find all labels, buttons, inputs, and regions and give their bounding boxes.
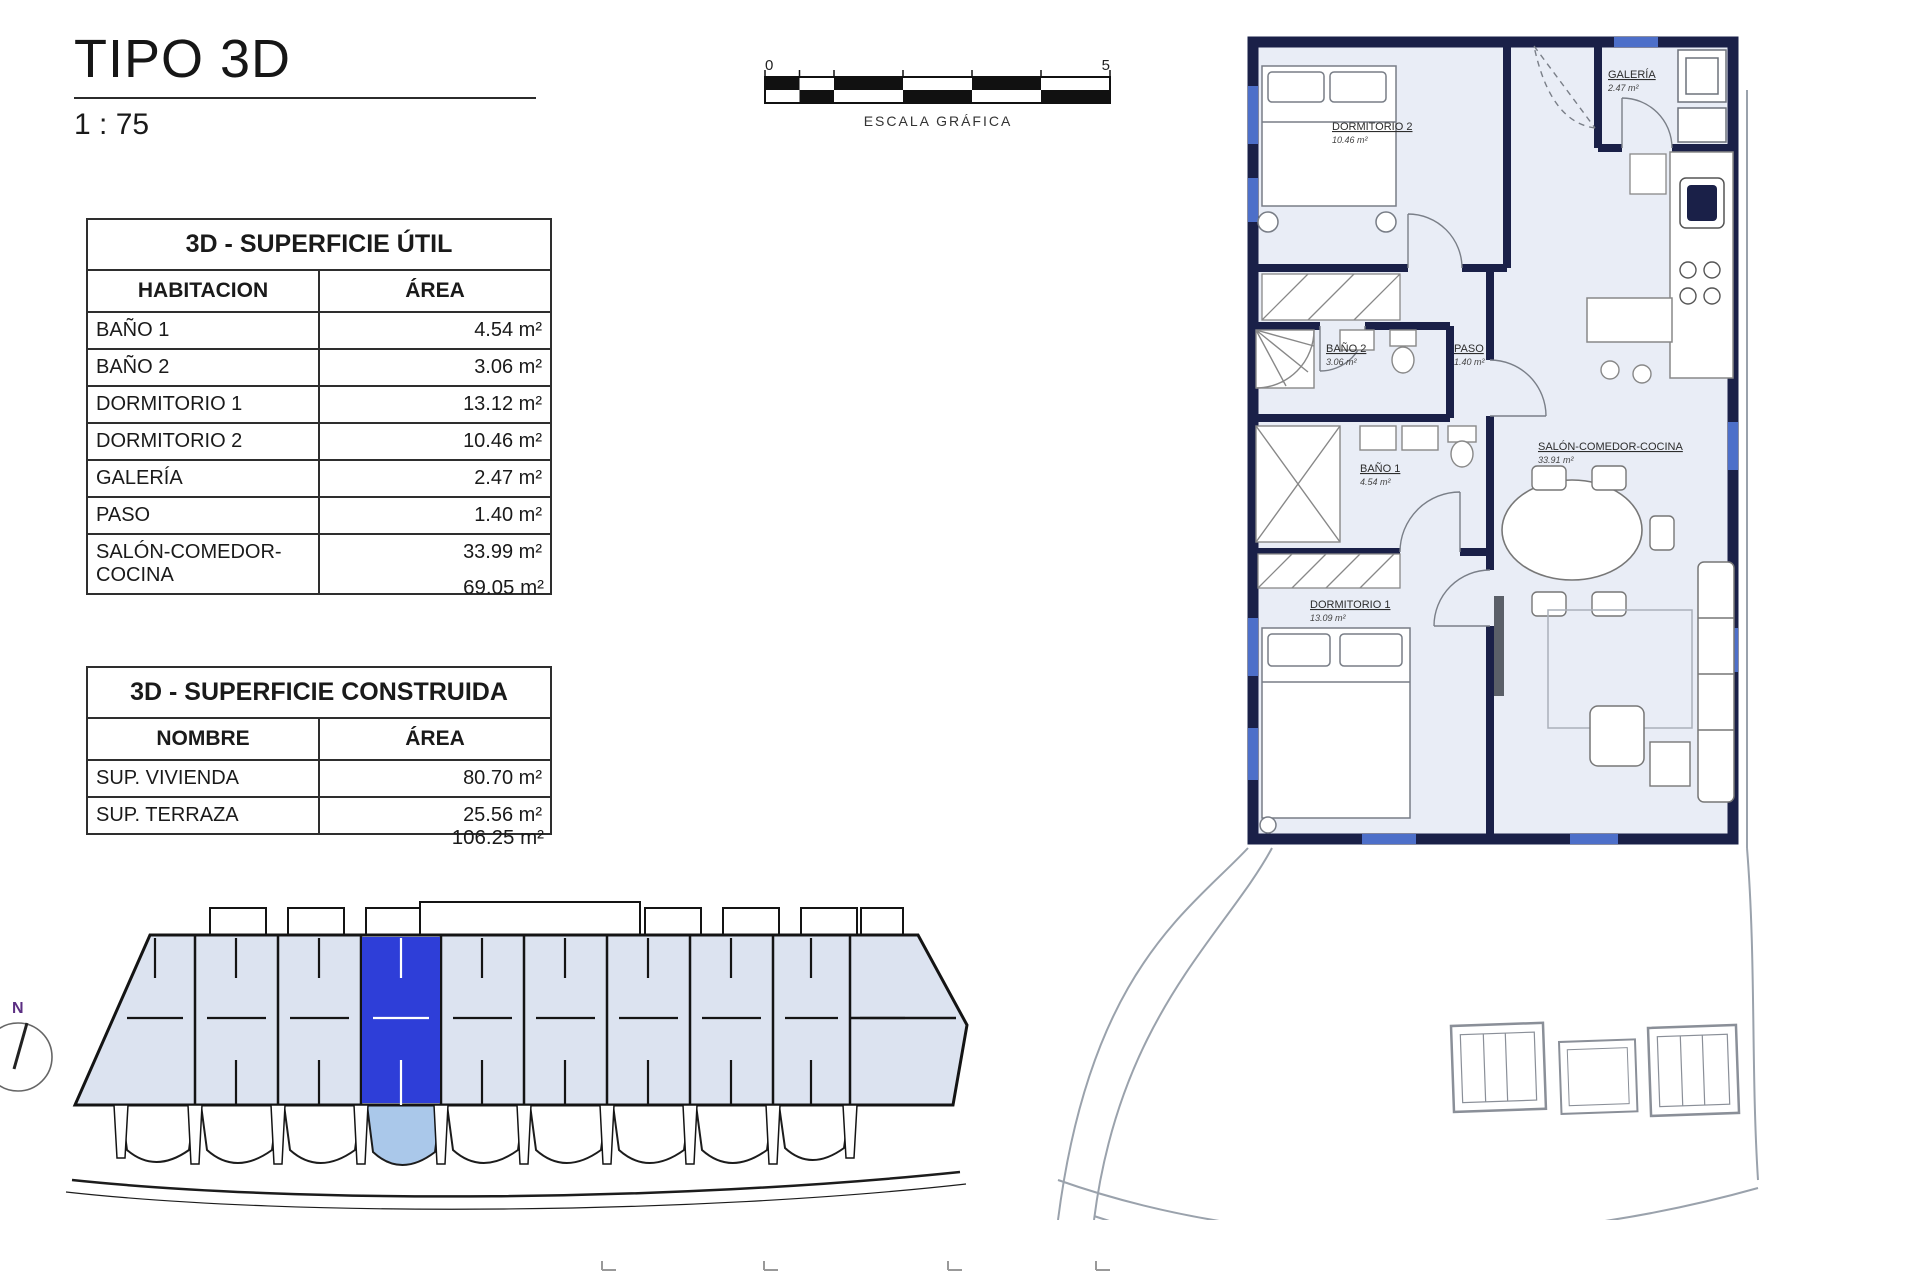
cell-area: 13.12 m² xyxy=(319,386,551,423)
room-label-dormitorio2: DORMITORIO 2 xyxy=(1332,121,1412,133)
construida-total: 106.25 m² xyxy=(86,826,544,850)
table-row: GALERÍA2.47 m² xyxy=(87,460,551,497)
cell-area: 2.47 m² xyxy=(319,460,551,497)
kitchen-peninsula xyxy=(1587,298,1672,342)
kitchen-sink xyxy=(1680,178,1724,228)
tv-unit xyxy=(1494,596,1504,696)
north-circle xyxy=(0,1023,52,1091)
table-title: 3D - SUPERFICIE CONSTRUIDA xyxy=(87,667,551,718)
table-header-row: NOMBRE ÁREA xyxy=(87,718,551,760)
table-row: BAÑO 14.54 m² xyxy=(87,312,551,349)
cell-area: 3.06 m² xyxy=(319,349,551,386)
table-title: 3D - SUPERFICIE ÚTIL xyxy=(87,219,551,270)
bed-dormitorio-1 xyxy=(1260,628,1410,833)
bottom-crop-marks xyxy=(598,1258,1138,1274)
cell-area: 10.46 m² xyxy=(319,423,551,460)
toilet-tank xyxy=(1448,426,1476,442)
cell-area: 1.40 m² xyxy=(319,497,551,534)
room-label-galeria: GALERÍA xyxy=(1608,68,1656,81)
highlighted-terrace xyxy=(367,1105,441,1165)
room-label-dormitorio1: DORMITORIO 1 xyxy=(1310,599,1390,611)
north-label: N xyxy=(12,1000,24,1017)
room-label-salon: SALÓN-COMEDOR-COCINA xyxy=(1538,440,1684,453)
util-total: 69.05 m² xyxy=(86,576,544,600)
floor-plan: DORMITORIO 2 10.46 m² GALERÍA 2.47 m² BA… xyxy=(1010,30,1760,1220)
stool xyxy=(1633,365,1651,383)
armchair xyxy=(1590,706,1644,766)
dining-table xyxy=(1502,480,1642,580)
sofa xyxy=(1698,562,1734,802)
key-plan xyxy=(60,900,990,1230)
table-row: PASO1.40 m² xyxy=(87,497,551,534)
room-area-salon: 33.91 m² xyxy=(1538,455,1575,465)
toilet-tank xyxy=(1390,330,1416,346)
keyplan-building-outline xyxy=(75,935,967,1105)
superficie-util-table: 3D - SUPERFICIE ÚTIL HABITACION ÁREA BAÑ… xyxy=(86,218,552,595)
room-area-bano2: 3.06 m² xyxy=(1326,357,1358,367)
page-title: TIPO 3D xyxy=(74,28,291,90)
sink xyxy=(1402,426,1438,450)
table-row: BAÑO 23.06 m² xyxy=(87,349,551,386)
cell-area: 80.70 m² xyxy=(319,760,551,797)
cell-room: BAÑO 2 xyxy=(87,349,319,386)
cell-room: DORMITORIO 2 xyxy=(87,423,319,460)
galeria-appliances xyxy=(1678,50,1726,142)
scale-tick-start: 0 xyxy=(765,57,773,74)
fridge xyxy=(1630,154,1666,194)
keyplan-balconies xyxy=(210,902,903,935)
keyplan-ground-lines xyxy=(66,1172,966,1209)
toilet-bowl xyxy=(1392,347,1414,373)
wardrobe-dormitorio-1 xyxy=(1258,554,1400,588)
room-label-bano2: BAÑO 2 xyxy=(1326,342,1366,355)
table-title-row: 3D - SUPERFICIE CONSTRUIDA xyxy=(87,667,551,718)
toilet-bowl xyxy=(1451,441,1473,467)
superficie-construida-table: 3D - SUPERFICIE CONSTRUIDA NOMBRE ÁREA S… xyxy=(86,666,552,835)
col-nombre: NOMBRE xyxy=(87,718,319,760)
side-table xyxy=(1650,742,1690,786)
wardrobe-dormitorio-2 xyxy=(1262,274,1400,320)
title-underline xyxy=(74,97,536,99)
room-label-paso: PASO xyxy=(1454,343,1484,355)
cell-area: 4.54 m² xyxy=(319,312,551,349)
col-area: ÁREA xyxy=(319,270,551,312)
table-row: DORMITORIO 113.12 m² xyxy=(87,386,551,423)
table-title-row: 3D - SUPERFICIE ÚTIL xyxy=(87,219,551,270)
cell-room: GALERÍA xyxy=(87,460,319,497)
room-area-dormitorio1: 13.09 m² xyxy=(1310,613,1347,623)
shower xyxy=(1256,426,1340,542)
room-area-dormitorio2: 10.46 m² xyxy=(1332,135,1369,145)
table-row: SUP. VIVIENDA80.70 m² xyxy=(87,760,551,797)
cell-room: DORMITORIO 1 xyxy=(87,386,319,423)
architectural-sheet: { "title": "TIPO 3D", "scale_ratio": "1 … xyxy=(0,0,1920,1280)
keyplan-terraces xyxy=(121,1105,850,1165)
cell-room: BAÑO 1 xyxy=(87,312,319,349)
col-habitacion: HABITACION xyxy=(87,270,319,312)
north-needle xyxy=(14,1023,27,1069)
sink xyxy=(1360,426,1396,450)
room-label-bano1: BAÑO 1 xyxy=(1360,462,1400,475)
table-header-row: HABITACION ÁREA xyxy=(87,270,551,312)
scale-ratio: 1 : 75 xyxy=(74,108,149,142)
cell-room: PASO xyxy=(87,497,319,534)
room-area-paso: 1.40 m² xyxy=(1454,357,1486,367)
cell-name: SUP. VIVIENDA xyxy=(87,760,319,797)
room-area-galeria: 2.47 m² xyxy=(1607,83,1640,93)
table-row: DORMITORIO 210.46 m² xyxy=(87,423,551,460)
stool xyxy=(1601,361,1619,379)
corner-shower xyxy=(1256,330,1314,388)
terrace-furniture xyxy=(1451,1023,1739,1116)
room-area-bano1: 4.54 m² xyxy=(1360,477,1392,487)
col-area: ÁREA xyxy=(319,718,551,760)
scale-bar-label: ESCALA GRÁFICA xyxy=(864,113,1013,129)
